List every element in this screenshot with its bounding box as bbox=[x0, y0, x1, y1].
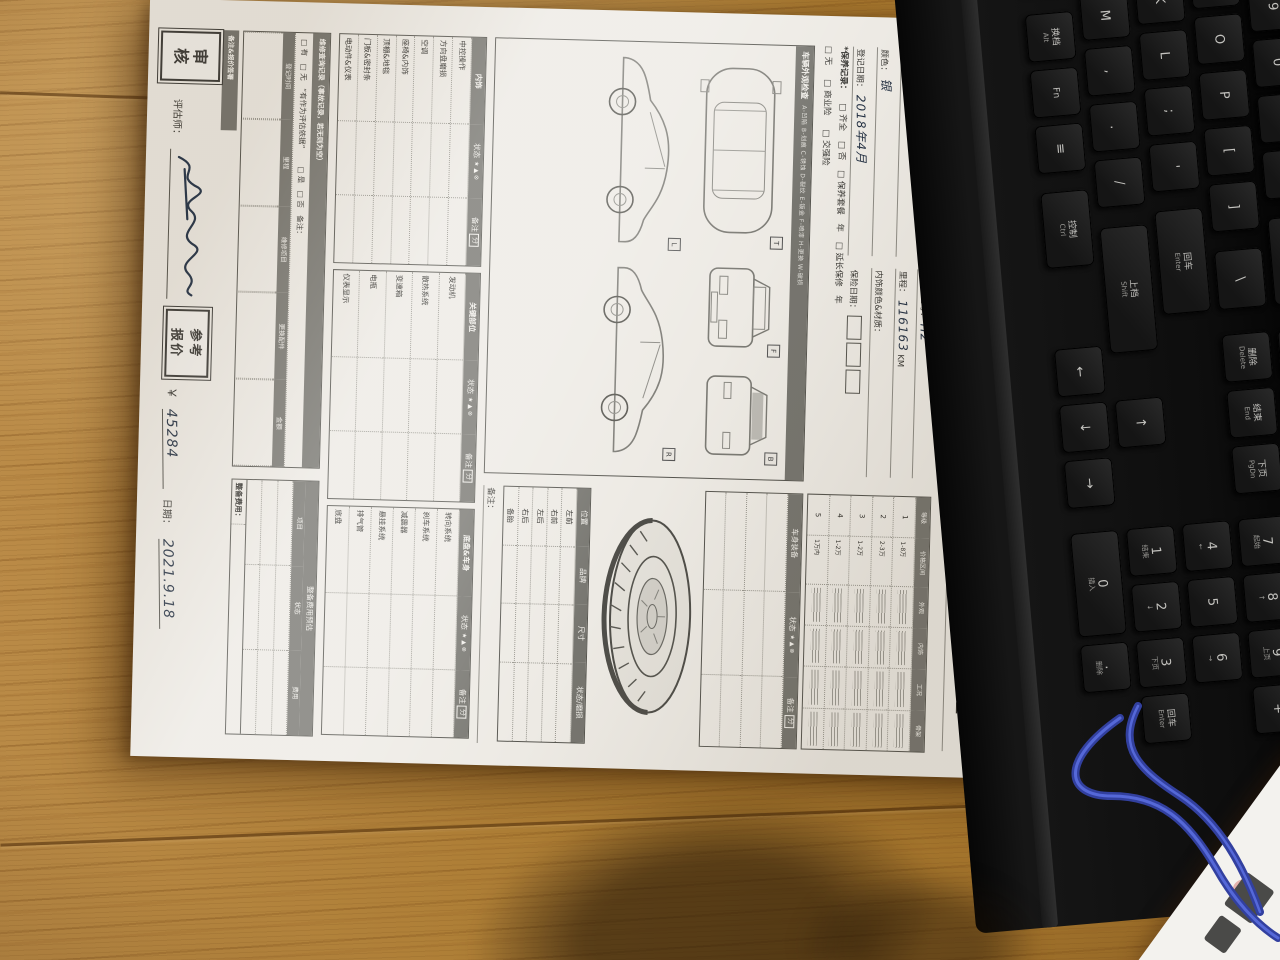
checklist-status-cell bbox=[336, 120, 356, 195]
checklist-item-label: 座椅&内饰 bbox=[395, 36, 415, 122]
tire-status-cell bbox=[527, 662, 543, 742]
checklist-item-label: 顶棚&地毯 bbox=[376, 35, 396, 121]
checklist-status-cell bbox=[356, 356, 383, 431]
keyboard-key: 6→ bbox=[1191, 632, 1243, 684]
checklist-table: 底盘&车身状态★ ▲ ⊗备注分转向系统刹车系统减震器悬挂系统排气管底盘 bbox=[321, 505, 475, 739]
registration-date-value: 2018年4月 bbox=[853, 94, 871, 163]
tire-position-cell: 左后 bbox=[532, 487, 547, 545]
rubric-criteria-cell bbox=[803, 666, 825, 708]
tire-status-cell bbox=[512, 662, 528, 742]
checklist-item-label: 电瓶 bbox=[358, 271, 386, 357]
corner-audit-stamp: 审 核 bbox=[160, 30, 221, 82]
recondition-cell bbox=[261, 480, 278, 564]
checklist-item-label: 空调 bbox=[413, 36, 433, 122]
body-equipment-table: 车身装备 状态 ★ ▲ ⊗ 备注 分 bbox=[699, 491, 804, 749]
rubric-criteria-cell bbox=[848, 584, 870, 626]
tire-header-cell: 品牌 bbox=[574, 546, 589, 604]
rubric-header-cell: 外观 bbox=[913, 587, 928, 628]
keyboard-key: [ bbox=[1203, 125, 1255, 177]
tire-brand-cell bbox=[501, 544, 516, 603]
color-value: 银 bbox=[878, 78, 895, 91]
car-view-right: R bbox=[591, 257, 682, 463]
repair-record-panel: 维修查询记录（事故记录，若无则为空） □ 有 □ 无 “有作为评估依据” □ 是… bbox=[232, 31, 331, 469]
keyboard-key: 7起始 bbox=[1237, 515, 1280, 567]
checklist-status-header: 状态★ ▲ ⊗ bbox=[468, 124, 484, 198]
checklist-item-label: 门板&密封条 bbox=[357, 35, 377, 121]
registration-date-field: 登记日期： 2018年4月 bbox=[848, 47, 873, 256]
keyboard-key: ← bbox=[1054, 346, 1106, 398]
checklist-status-cell bbox=[346, 592, 369, 667]
checklist-note-cell bbox=[410, 668, 433, 737]
recondition-cell bbox=[276, 481, 293, 565]
rubric-criteria-cell bbox=[846, 667, 868, 709]
equipment-status-cell bbox=[702, 589, 724, 674]
checklist-note-cell bbox=[410, 196, 430, 265]
checklist-item-label: 悬挂系统 bbox=[370, 507, 393, 593]
maint-package-option: □ 保养套餐 年 bbox=[834, 170, 848, 232]
keyboard-key: 4← bbox=[1182, 520, 1234, 572]
tire-brand-cell bbox=[545, 545, 560, 604]
tire-size-cell bbox=[514, 603, 529, 662]
rubric-criteria-cell bbox=[868, 668, 890, 710]
checklist-status-cell bbox=[390, 593, 413, 668]
repair-empty-cell bbox=[238, 205, 278, 293]
repair-has-records-options: □ 有 □ 无 “有作为评估依据” bbox=[296, 39, 310, 148]
tire-illustration bbox=[589, 510, 698, 723]
rubric-header-cell: 工况 bbox=[911, 669, 926, 710]
tire-status-cell bbox=[556, 663, 572, 743]
repair-col-header: 维修项目 bbox=[276, 206, 290, 293]
checklist-status-cell bbox=[383, 357, 410, 432]
tire-size-cell bbox=[558, 604, 573, 663]
signoff-date-value: 2021.9.18 bbox=[158, 539, 176, 629]
checklist-status-cell bbox=[411, 122, 431, 197]
checklist-item-label: 仪表显示 bbox=[332, 270, 360, 356]
checklist-note-cell bbox=[354, 431, 381, 500]
tire-position-cell: 右后 bbox=[518, 487, 533, 545]
checklist-status-cell bbox=[412, 594, 435, 669]
equipment-item-cell bbox=[724, 492, 746, 589]
rubric-criteria-cell bbox=[891, 585, 913, 627]
equipment-note-cell bbox=[720, 674, 741, 746]
insurance-date-field: 保险日期： bbox=[842, 268, 867, 477]
tire-table: 位置品牌尺寸状态/磨损 左前右前左后右后备胎 bbox=[497, 486, 592, 744]
rubric-criteria-cell bbox=[823, 708, 845, 750]
rubric-criteria-cell bbox=[890, 627, 912, 669]
rubric-level: 5 bbox=[807, 495, 829, 536]
photo-scene: 二手车车辆检测及评估表 2021.9.17 客户： 黄伟敏 使用方式： 私用 bbox=[0, 0, 1280, 960]
keyboard-key: ] bbox=[1208, 180, 1260, 232]
repair-record-header: 维修查询记录（事故记录，若无则为空） bbox=[315, 39, 325, 165]
keyboard-key: 9 bbox=[1247, 0, 1280, 32]
equipment-item-cell bbox=[765, 494, 787, 591]
rubric-level: 4 bbox=[829, 495, 851, 536]
tire-brand-cell bbox=[516, 545, 531, 604]
rubric-criteria-cell bbox=[805, 583, 827, 625]
keyboard-key: 回车Enter bbox=[1154, 208, 1211, 316]
repair-empty-cell bbox=[243, 32, 283, 120]
rubric-price: 2-3万 bbox=[871, 537, 893, 586]
keyboard-key: , bbox=[1084, 45, 1136, 97]
blue-cable bbox=[1020, 700, 1280, 960]
rubric-header-cell: 价格区间 bbox=[914, 538, 929, 587]
rubric-criteria-cell bbox=[866, 709, 888, 751]
signoff-section-header: 备注&报价签署 bbox=[221, 30, 240, 130]
checklist-note-cell bbox=[381, 431, 408, 500]
keyboard-key: 换档Alt bbox=[1025, 11, 1077, 63]
keyboard-key: 5 bbox=[1186, 576, 1238, 628]
checklist-item-label: 电动件&仪表 bbox=[338, 34, 358, 120]
keyboard-key: = bbox=[1261, 148, 1280, 200]
equipment-status-cell bbox=[763, 590, 785, 675]
equipment-item-cell bbox=[745, 493, 767, 590]
rubric-criteria-cell bbox=[825, 625, 847, 667]
checklist-status-cell bbox=[368, 593, 391, 668]
extended-warranty-option: □ 延长保修 年 bbox=[832, 242, 846, 304]
rubric-price: 1万内 bbox=[806, 535, 828, 584]
reference-price-stamp: 参考报价 bbox=[164, 309, 210, 378]
maint-option-complete: □ 齐全 bbox=[837, 103, 850, 131]
checklist-status-cell bbox=[449, 123, 469, 198]
checklist-status-cell bbox=[435, 358, 462, 433]
checklist-note-header: 备注分 bbox=[460, 434, 476, 502]
car-view-top: T bbox=[689, 49, 790, 251]
keyboard-key: Fn bbox=[1030, 67, 1082, 119]
tire-size-cell bbox=[500, 603, 515, 662]
rubric-criteria-cell bbox=[804, 624, 826, 666]
tire-header-cell: 状态/磨损 bbox=[571, 662, 586, 743]
keyboard-key: 删除Delete bbox=[1221, 331, 1273, 383]
checklist-title: 底盘&车身 bbox=[458, 509, 474, 596]
tire-header-cell: 位置 bbox=[576, 489, 591, 547]
checklist-status-header: 状态★ ▲ ⊗ bbox=[462, 360, 478, 434]
equipment-note-cell bbox=[700, 674, 721, 746]
rubric-level: 2 bbox=[872, 496, 894, 537]
keyboard-key: P bbox=[1198, 69, 1250, 121]
recondition-col-header: 费用 bbox=[287, 650, 301, 735]
rubric-criteria-cell bbox=[802, 707, 824, 749]
rubric-header-cell: 内饰 bbox=[912, 628, 927, 669]
recondition-cell bbox=[274, 565, 291, 650]
rubric-criteria-cell bbox=[888, 709, 910, 751]
checklist-note-cell bbox=[434, 433, 461, 502]
keyboard-key: ; bbox=[1144, 85, 1196, 137]
checklist-note-cell bbox=[353, 194, 373, 263]
equipment-status-cell bbox=[743, 590, 765, 675]
checklist-item-label: 排气管 bbox=[348, 507, 371, 593]
tire-position-cell: 左前 bbox=[561, 488, 576, 546]
keyboard-key: 1结束 bbox=[1126, 525, 1178, 577]
exterior-legend: A-凹陷 B-划痕 C-锈蚀 D-裂纹 E-钣金 F-喷漆 H-更换 W-破损 bbox=[796, 105, 807, 286]
car-view-back: B bbox=[683, 363, 782, 467]
equipment-status-cell bbox=[722, 589, 744, 674]
keyboard-key: 0插入 bbox=[1070, 530, 1127, 638]
checklist-item-label: 变速箱 bbox=[385, 271, 413, 357]
keyboard-key: ' bbox=[1148, 141, 1200, 193]
recondition-total-label: 整备费用： bbox=[231, 479, 246, 523]
repair-col-header: 里程 bbox=[279, 119, 293, 206]
checklist-note-cell bbox=[328, 430, 355, 499]
keyboard-key: - bbox=[1257, 92, 1280, 144]
car-view-front: F bbox=[686, 255, 785, 359]
mileage-field: 里程： 116163 KM bbox=[890, 269, 913, 478]
rubric-level: 1 bbox=[894, 497, 916, 538]
keyboard-key: 0 bbox=[1252, 36, 1280, 88]
repair-col-header: 更换配件 bbox=[274, 293, 288, 380]
checklist-note-cell bbox=[366, 667, 389, 736]
checklist-table: 关键部位状态★ ▲ ⊗备注分发动机散热系统变速箱电瓶仪表显示 bbox=[327, 269, 481, 503]
exterior-header: 车辆外观检查 bbox=[800, 51, 809, 99]
signoff-date-label: 日期： bbox=[160, 499, 176, 529]
checklist-note-cell bbox=[407, 432, 434, 501]
insurance-none-option: □ 无 bbox=[823, 46, 835, 66]
rubric-level: 3 bbox=[850, 496, 872, 537]
assessor-signature bbox=[166, 149, 205, 300]
tire-size-cell bbox=[529, 604, 544, 663]
recondition-estimate-table: 整备费用预估 项目状态费用 整备费用： bbox=[225, 478, 320, 736]
checklist-note-cell bbox=[344, 666, 367, 735]
checklist-item-label: 底盘 bbox=[326, 506, 349, 592]
currency-symbol: ￥ bbox=[164, 387, 181, 399]
checklist-note-cell bbox=[372, 195, 392, 264]
keyboard-key: L bbox=[1139, 29, 1191, 81]
keyboard-key: / bbox=[1094, 157, 1146, 209]
checklist-note-header: 备注分 bbox=[466, 198, 482, 266]
keyboard-key: ≡ bbox=[1034, 123, 1086, 175]
recondition-cell bbox=[245, 480, 262, 564]
checklist-status-cell bbox=[374, 121, 394, 196]
checklist-status-cell bbox=[430, 122, 450, 197]
rubric-price: 1-8万 bbox=[892, 537, 914, 586]
rubric-criteria-cell bbox=[845, 708, 867, 750]
keyboard-key: M bbox=[1079, 0, 1131, 41]
rubric-header-cell: 骨架 bbox=[910, 710, 925, 751]
equipment-item-cell bbox=[704, 492, 726, 589]
tire-position-cell: 右前 bbox=[547, 488, 562, 546]
checklist-note-cell bbox=[447, 197, 467, 266]
checklist-item-label: 转向系统 bbox=[436, 509, 459, 595]
keyboard-key: 2↓ bbox=[1131, 581, 1183, 633]
recondition-cell bbox=[241, 649, 258, 734]
maintenance-record-label: *保养记录： bbox=[838, 46, 851, 93]
mileage-value: 116163 bbox=[896, 299, 910, 351]
rubric-criteria-cell bbox=[870, 585, 892, 627]
checklist-note-cell bbox=[322, 666, 345, 735]
color-field: 颜色： 银 bbox=[872, 47, 897, 256]
keyboard-key: K bbox=[1134, 0, 1186, 25]
tire-position-cell: 备胎 bbox=[503, 487, 518, 545]
checklist-note-cell bbox=[391, 195, 411, 264]
tire-brand-cell bbox=[531, 545, 546, 604]
keyboard-key: ↑ bbox=[1115, 397, 1167, 449]
rubric-criteria-cell bbox=[827, 584, 849, 626]
insurance-commercial-option: □ 商业险 bbox=[821, 79, 834, 116]
checklist-item-label: 刹车系统 bbox=[414, 508, 437, 594]
keyboard-key: → bbox=[1064, 457, 1116, 509]
checklist-item-label: 散热系统 bbox=[411, 272, 439, 358]
checklist-note-cell bbox=[432, 669, 455, 738]
recondition-col-header: 状态 bbox=[289, 566, 303, 651]
tire-brand-cell bbox=[560, 546, 575, 605]
keyboard-key: 8↑ bbox=[1242, 571, 1280, 623]
keyboard-key: \ bbox=[1214, 247, 1267, 310]
checklist-title: 内饰 bbox=[470, 38, 486, 125]
equipment-note-cell bbox=[741, 675, 762, 747]
checklist-status-cell bbox=[355, 120, 375, 195]
keyboard-key: 下页PgDn bbox=[1231, 443, 1280, 495]
keyboard-key: 控制Ctrl bbox=[1040, 190, 1094, 270]
checklist-note-cell bbox=[428, 196, 448, 265]
tire-size-cell bbox=[544, 604, 559, 663]
price-value: 45284 bbox=[162, 409, 180, 489]
checklist-status-cell bbox=[324, 592, 347, 667]
assessor-label: 评估师： bbox=[170, 99, 186, 139]
checklist-item-label: 减震器 bbox=[392, 508, 415, 594]
checklist-note-cell bbox=[334, 194, 354, 263]
keyboard-key: 9上页 bbox=[1247, 627, 1280, 679]
recondition-col-header: 项目 bbox=[291, 481, 305, 566]
rubric-criteria-cell bbox=[869, 626, 891, 668]
checklist-status-cell bbox=[393, 121, 413, 196]
checklist-status-cell bbox=[330, 356, 357, 431]
rubric-criteria-cell bbox=[847, 626, 869, 668]
keyboard-key: 3下页 bbox=[1136, 637, 1188, 689]
grade-rubric-table: 等级价格区间外观内饰工况骨架 11-8万22-3万31-2万41-2万51万内 bbox=[801, 494, 932, 753]
keyboard-key: O bbox=[1193, 13, 1245, 65]
repair-empty-cell bbox=[236, 292, 276, 380]
recondition-cell bbox=[258, 564, 275, 649]
rubric-price: 1-2万 bbox=[828, 535, 850, 584]
checklist-status-cell bbox=[409, 358, 436, 433]
recondition-cell bbox=[256, 649, 273, 734]
keyboard-key: . bbox=[1089, 101, 1141, 153]
repair-col-header: 金额 bbox=[272, 380, 286, 467]
rubric-criteria-cell bbox=[824, 666, 846, 708]
equipment-note-cell bbox=[761, 675, 782, 747]
checklist-item-label: 方向盘磨损 bbox=[432, 37, 452, 123]
keyboard-key: 结束End bbox=[1226, 387, 1278, 439]
keyboard-key: ↓ bbox=[1059, 402, 1111, 454]
rubric-criteria-cell bbox=[889, 668, 911, 710]
checklist-title: 关键部位 bbox=[464, 274, 480, 361]
checklist-item-label: 发动机 bbox=[437, 273, 465, 359]
recondition-cell bbox=[243, 564, 260, 649]
maint-option-no: □ 否 bbox=[836, 141, 848, 161]
checklist-status-cell bbox=[434, 594, 457, 669]
interior-color-field: 内饰颜色&材质： bbox=[866, 268, 891, 477]
checklist-note-cell bbox=[388, 668, 411, 737]
tire-status-cell bbox=[498, 661, 514, 741]
recondition-cell bbox=[272, 650, 289, 735]
rubric-price: 1-2万 bbox=[849, 536, 871, 585]
checklist-table: 内饰状态★ ▲ ⊗备注分中控操作方向盘磨损空调座椅&内饰顶棚&地毯门板&密封条电… bbox=[333, 33, 487, 267]
repair-empty-cell bbox=[241, 118, 281, 206]
car-view-left: L bbox=[597, 47, 688, 253]
repair-col-header: 登记时间 bbox=[281, 33, 295, 120]
checklist-item-label: 中控操作 bbox=[451, 37, 471, 123]
insurance-compulsory-option: □ 交强险 bbox=[820, 129, 833, 166]
repair-yesno-options: □ 是 □ 否 备注： bbox=[294, 166, 307, 238]
keyboard-key: .删除 bbox=[1080, 641, 1132, 693]
checklist-status-header: 状态★ ▲ ⊗ bbox=[456, 596, 472, 670]
tire-header-cell: 尺寸 bbox=[573, 604, 588, 662]
tire-status-cell bbox=[542, 662, 558, 742]
rubric-header-cell: 等级 bbox=[915, 497, 930, 538]
checklist-note-header: 备注分 bbox=[454, 670, 470, 738]
repair-empty-cell bbox=[234, 379, 274, 467]
exterior-inspection-panel: 车辆外观检查 A-凹陷 B-划痕 C-锈蚀 D-裂纹 E-钣金 F-喷漆 H-更… bbox=[484, 37, 815, 481]
